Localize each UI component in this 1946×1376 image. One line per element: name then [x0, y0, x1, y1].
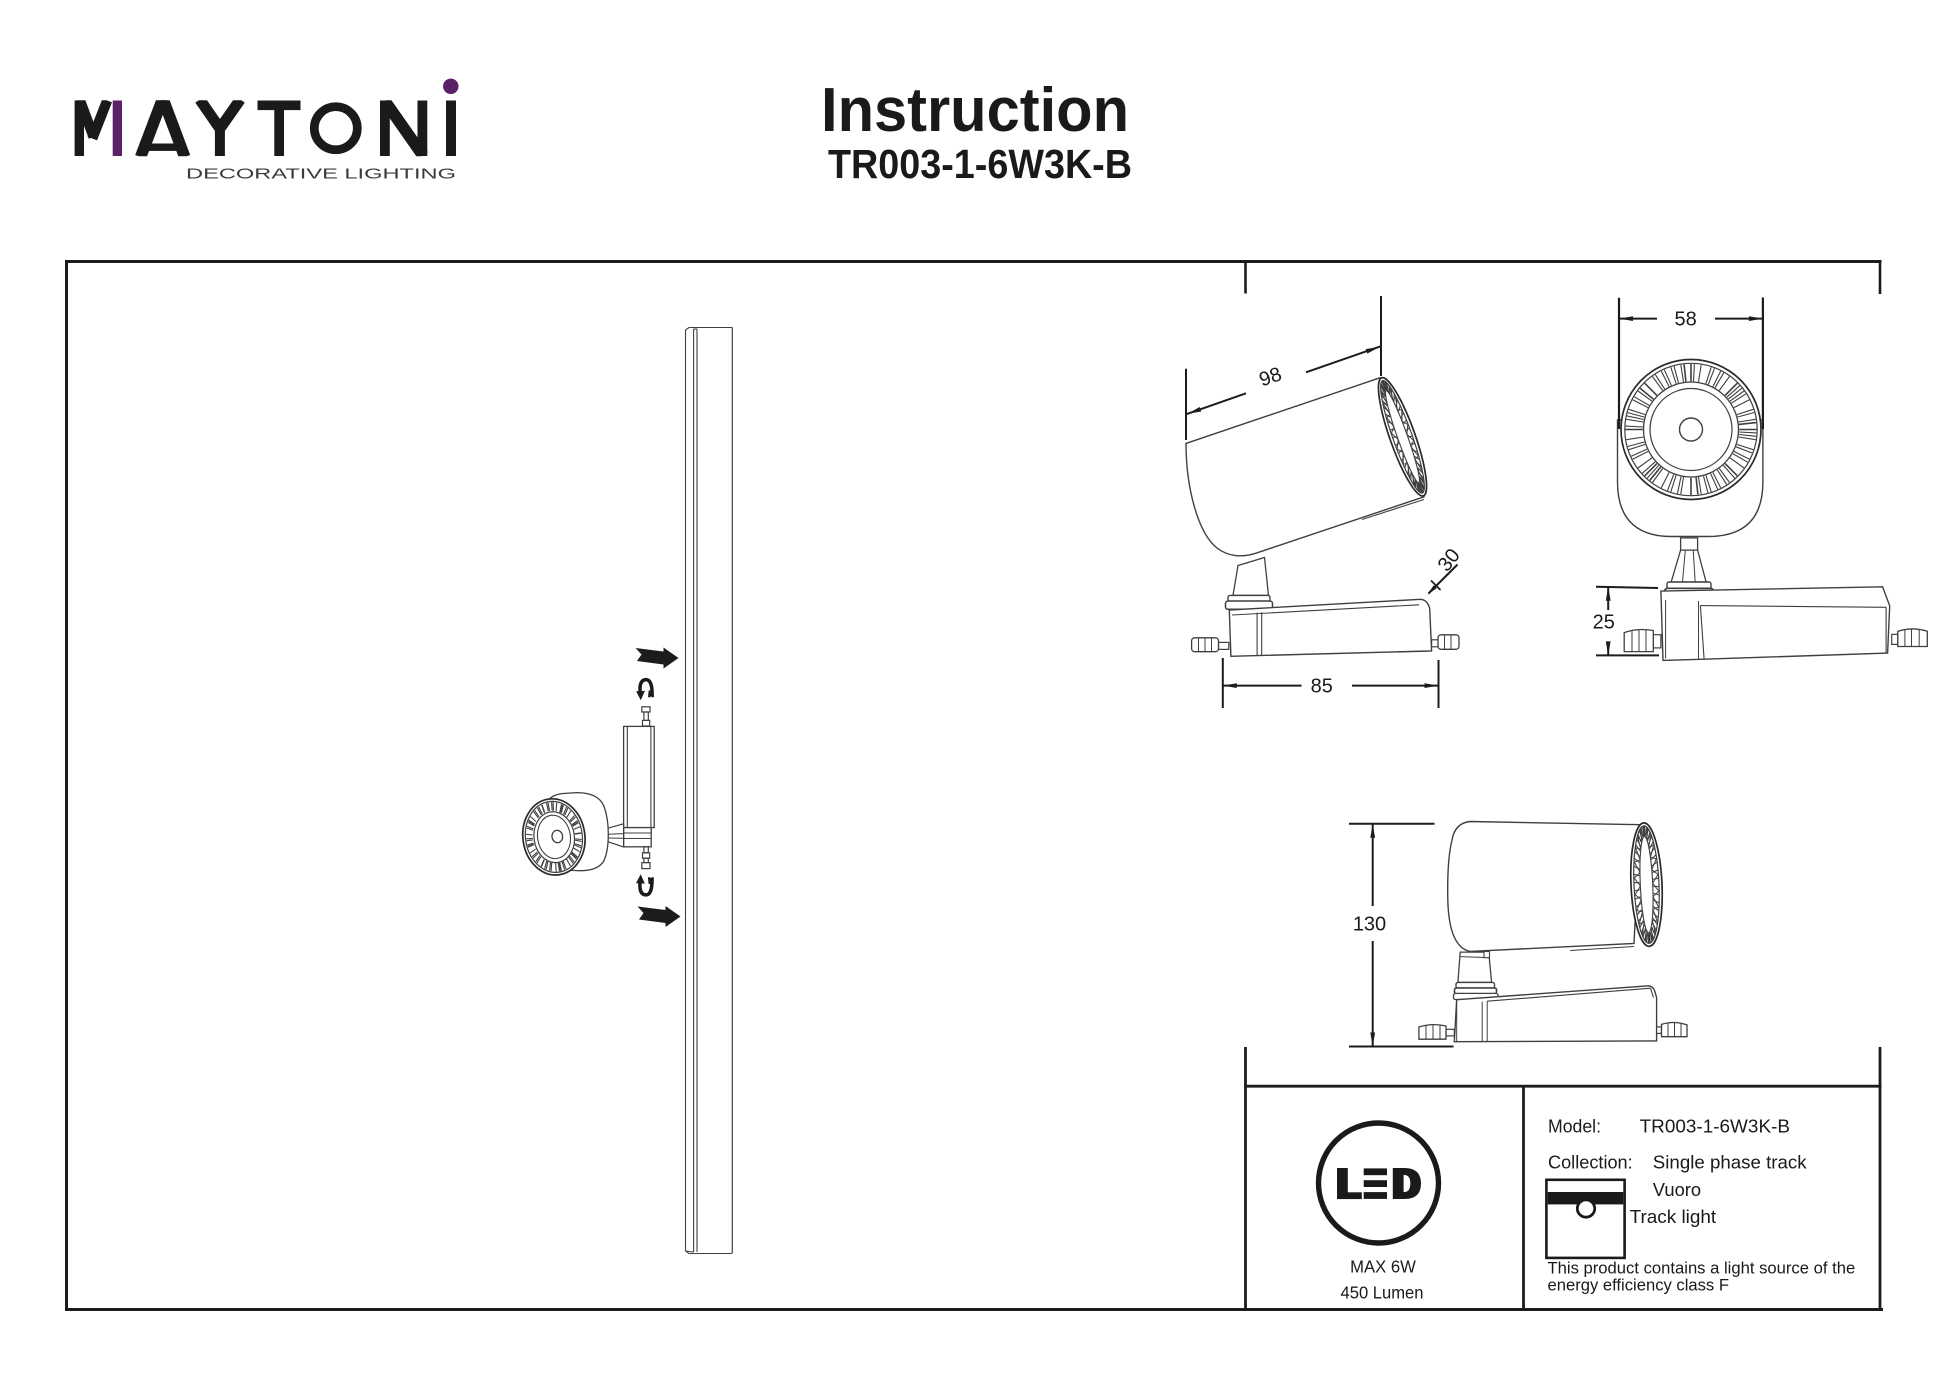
svg-text:25: 25 — [1593, 612, 1615, 634]
svg-text:58: 58 — [1674, 308, 1696, 330]
svg-text:TR003-1-6W3K-B: TR003-1-6W3K-B — [828, 141, 1132, 187]
svg-text:Instruction: Instruction — [821, 76, 1129, 145]
svg-text:Model:: Model: — [1548, 1116, 1601, 1137]
svg-text:85: 85 — [1311, 675, 1333, 697]
svg-text:130: 130 — [1353, 914, 1386, 936]
svg-text:TR003-1-6W3K-B: TR003-1-6W3K-B — [1640, 1116, 1790, 1137]
svg-text:Vuoro: Vuoro — [1653, 1179, 1701, 1200]
svg-text:Single phase track: Single phase track — [1653, 1151, 1808, 1172]
svg-text:DECORATIVE LIGHTING: DECORATIVE LIGHTING — [186, 167, 456, 183]
svg-text:Track light: Track light — [1630, 1206, 1717, 1227]
svg-text:energy efficiency class F: energy efficiency class F — [1548, 1275, 1730, 1294]
svg-text:MAX 6W: MAX 6W — [1350, 1256, 1416, 1276]
svg-text:Collection:: Collection: — [1548, 1151, 1633, 1172]
svg-text:450 Lumen: 450 Lumen — [1341, 1282, 1424, 1302]
